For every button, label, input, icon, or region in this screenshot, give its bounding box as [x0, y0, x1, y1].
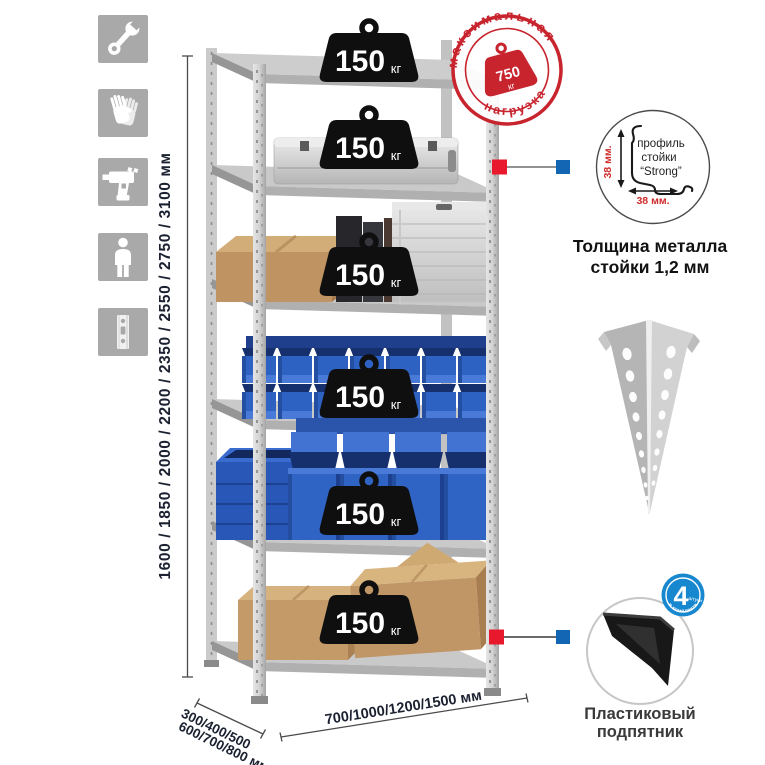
profile-horizontal-dim: 38 мм. — [636, 195, 669, 207]
angle-profile-image — [598, 320, 700, 514]
marker-red-top — [492, 160, 507, 175]
marker-red-bottom — [489, 630, 504, 645]
profile-caption-1: Толщина металла — [573, 236, 728, 256]
scene-canvas: 150 кг 150 кг 150 кг 150 кг — [0, 0, 765, 765]
profile-detail-callout: 38 мм. 38 мм. профиль стойки “Strong” То… — [573, 111, 728, 278]
marker-blue-top — [556, 160, 570, 174]
front-left-post — [251, 64, 268, 704]
badge-unit: кг — [391, 148, 402, 163]
height-dimension-label: 1600 / 1850 / 2000 / 2200 / 2350 / 2550 … — [157, 152, 174, 579]
badge-value: 150 — [335, 498, 385, 531]
load-badge-1: 150 кг — [320, 21, 419, 82]
foot-caption-1: Пластиковый — [584, 705, 695, 723]
profile-label-1: профиль — [637, 138, 685, 150]
badge-unit: кг — [391, 61, 402, 76]
badge-unit: кг — [391, 514, 402, 529]
depth-dimension: 300/400/500 600/700/800 мм — [176, 699, 271, 765]
profile-vertical-dim: 38 мм. — [602, 145, 614, 178]
back-left-post — [206, 48, 217, 664]
badge-unit: кг — [391, 397, 402, 412]
foot-caption-2: подпятник — [597, 723, 684, 741]
badge-unit: кг — [391, 275, 402, 290]
front-right-post — [484, 54, 501, 696]
profile-label-2: стойки — [641, 152, 676, 164]
badge-value: 150 — [335, 259, 385, 292]
badge-value: 150 — [335, 45, 385, 78]
callout-connectors — [489, 160, 570, 645]
load-badge-2: 150 кг — [320, 108, 419, 169]
profile-label-3: “Strong” — [640, 166, 682, 178]
profile-caption-2: стойки 1,2 мм — [591, 257, 710, 277]
marker-blue-bottom — [556, 630, 570, 644]
badge-unit: кг — [391, 623, 402, 638]
plastic-foot-callout: 4 штуки в комплекте Пластиковый подпятни… — [584, 574, 704, 742]
max-load-stamp: максимальная нагрузка 750 кг — [433, 0, 578, 138]
width-dimension-label: 700/1000/1200/1500 мм — [324, 688, 483, 729]
quantity-badge: 4 штуки в комплекте — [662, 574, 705, 617]
badge-value: 150 — [335, 607, 385, 640]
badge-value: 150 — [335, 381, 385, 414]
badge-value: 150 — [335, 132, 385, 165]
shelving-product-infographic: 150 кг 150 кг 150 кг 150 кг — [0, 0, 765, 765]
height-dimension: 1600 / 1850 / 2000 / 2200 / 2350 / 2550 … — [157, 56, 193, 677]
